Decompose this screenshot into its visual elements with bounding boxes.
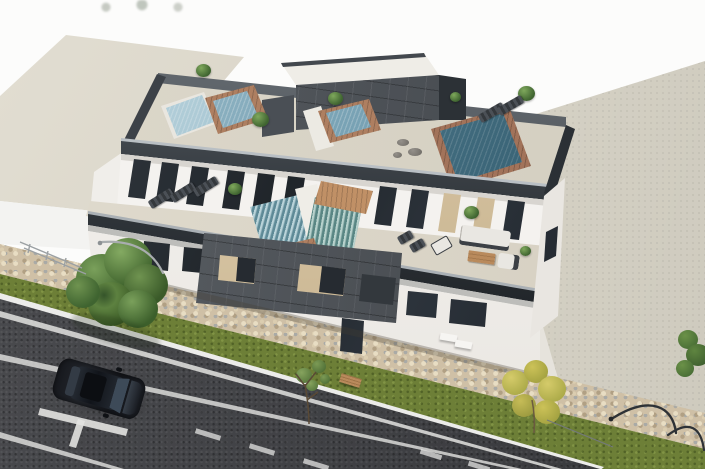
shrub xyxy=(674,328,705,382)
potted-plant xyxy=(520,246,531,256)
potted-plant xyxy=(228,183,242,195)
potted-plant xyxy=(252,112,269,127)
potted-plant xyxy=(328,92,343,105)
yellow-canopy xyxy=(538,376,566,402)
potted-plant xyxy=(450,92,461,102)
decorative-rock xyxy=(397,139,409,146)
sapling-canopy xyxy=(320,374,330,384)
render-canvas xyxy=(0,0,705,469)
sapling-tree xyxy=(288,354,334,398)
yellow-canopy xyxy=(512,394,536,417)
sapling-canopy xyxy=(312,360,326,373)
potted-plant xyxy=(464,206,479,219)
potted-plant xyxy=(196,64,211,77)
yellow-canopy xyxy=(534,400,560,424)
decorative-rock xyxy=(408,148,422,156)
decorative-rock xyxy=(393,152,402,158)
yellow-tree xyxy=(494,360,570,438)
sapling-canopy xyxy=(306,380,318,391)
armchair xyxy=(497,253,520,271)
tree-canopy xyxy=(66,276,100,308)
shrub-canopy xyxy=(676,360,694,377)
